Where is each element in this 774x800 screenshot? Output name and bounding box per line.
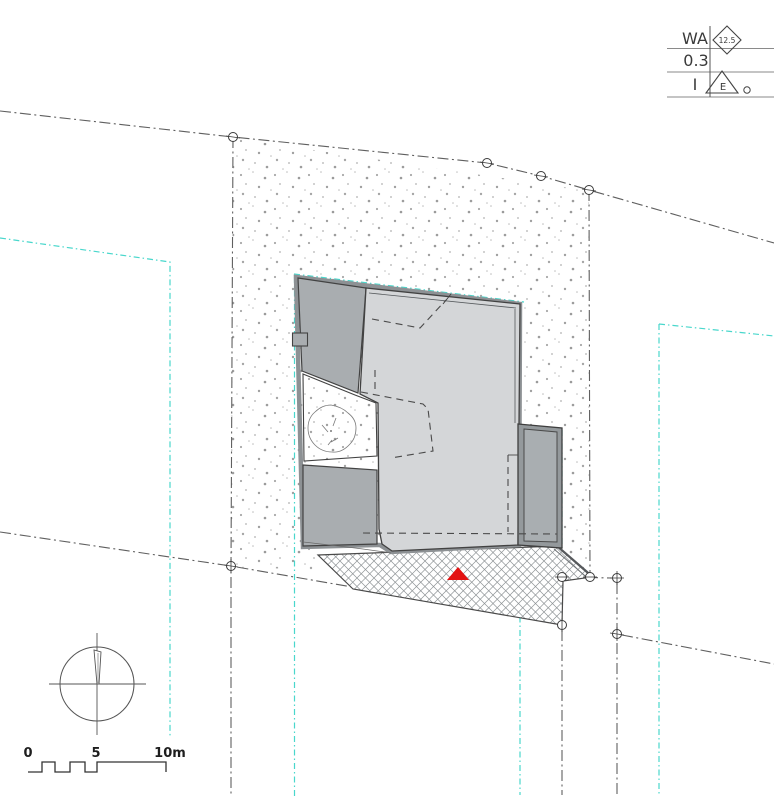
cyan-line-west bbox=[0, 238, 170, 737]
title-block-code-2: 0.3 bbox=[683, 51, 708, 70]
room-southwest bbox=[303, 465, 377, 546]
scale-bar-rule bbox=[28, 762, 166, 772]
boundary-line-southeast bbox=[622, 635, 774, 664]
survey-marker bbox=[534, 172, 548, 181]
small-circle-mark bbox=[744, 87, 750, 93]
scale-label-5: 5 bbox=[91, 746, 100, 761]
site-plan-drawing: 0 5 10m WA 12.5 0.3 I E bbox=[0, 0, 774, 800]
scale-bar: 0 5 10m bbox=[23, 746, 185, 772]
diamond-badge-value: 12.5 bbox=[719, 36, 736, 45]
room-main bbox=[360, 288, 520, 551]
annex-east bbox=[518, 424, 562, 548]
terrace-hatch bbox=[318, 546, 594, 625]
title-block-code-3: I bbox=[693, 75, 698, 94]
compass-needle bbox=[94, 650, 101, 684]
title-block-code-1: WA bbox=[682, 29, 708, 48]
north-arrow bbox=[49, 633, 146, 735]
survey-marker bbox=[480, 159, 494, 168]
scale-label-0: 0 bbox=[23, 746, 32, 761]
scale-label-10m: 10m bbox=[154, 746, 186, 761]
survey-marker bbox=[610, 627, 624, 641]
wall-notch bbox=[293, 333, 308, 346]
building-footprint bbox=[293, 277, 563, 553]
cyan-line-east bbox=[659, 324, 774, 795]
survey-marker bbox=[610, 571, 624, 585]
triangle-badge-label: E bbox=[720, 82, 726, 93]
annex-inner bbox=[524, 429, 557, 542]
title-block: WA 12.5 0.3 I E bbox=[667, 26, 774, 97]
